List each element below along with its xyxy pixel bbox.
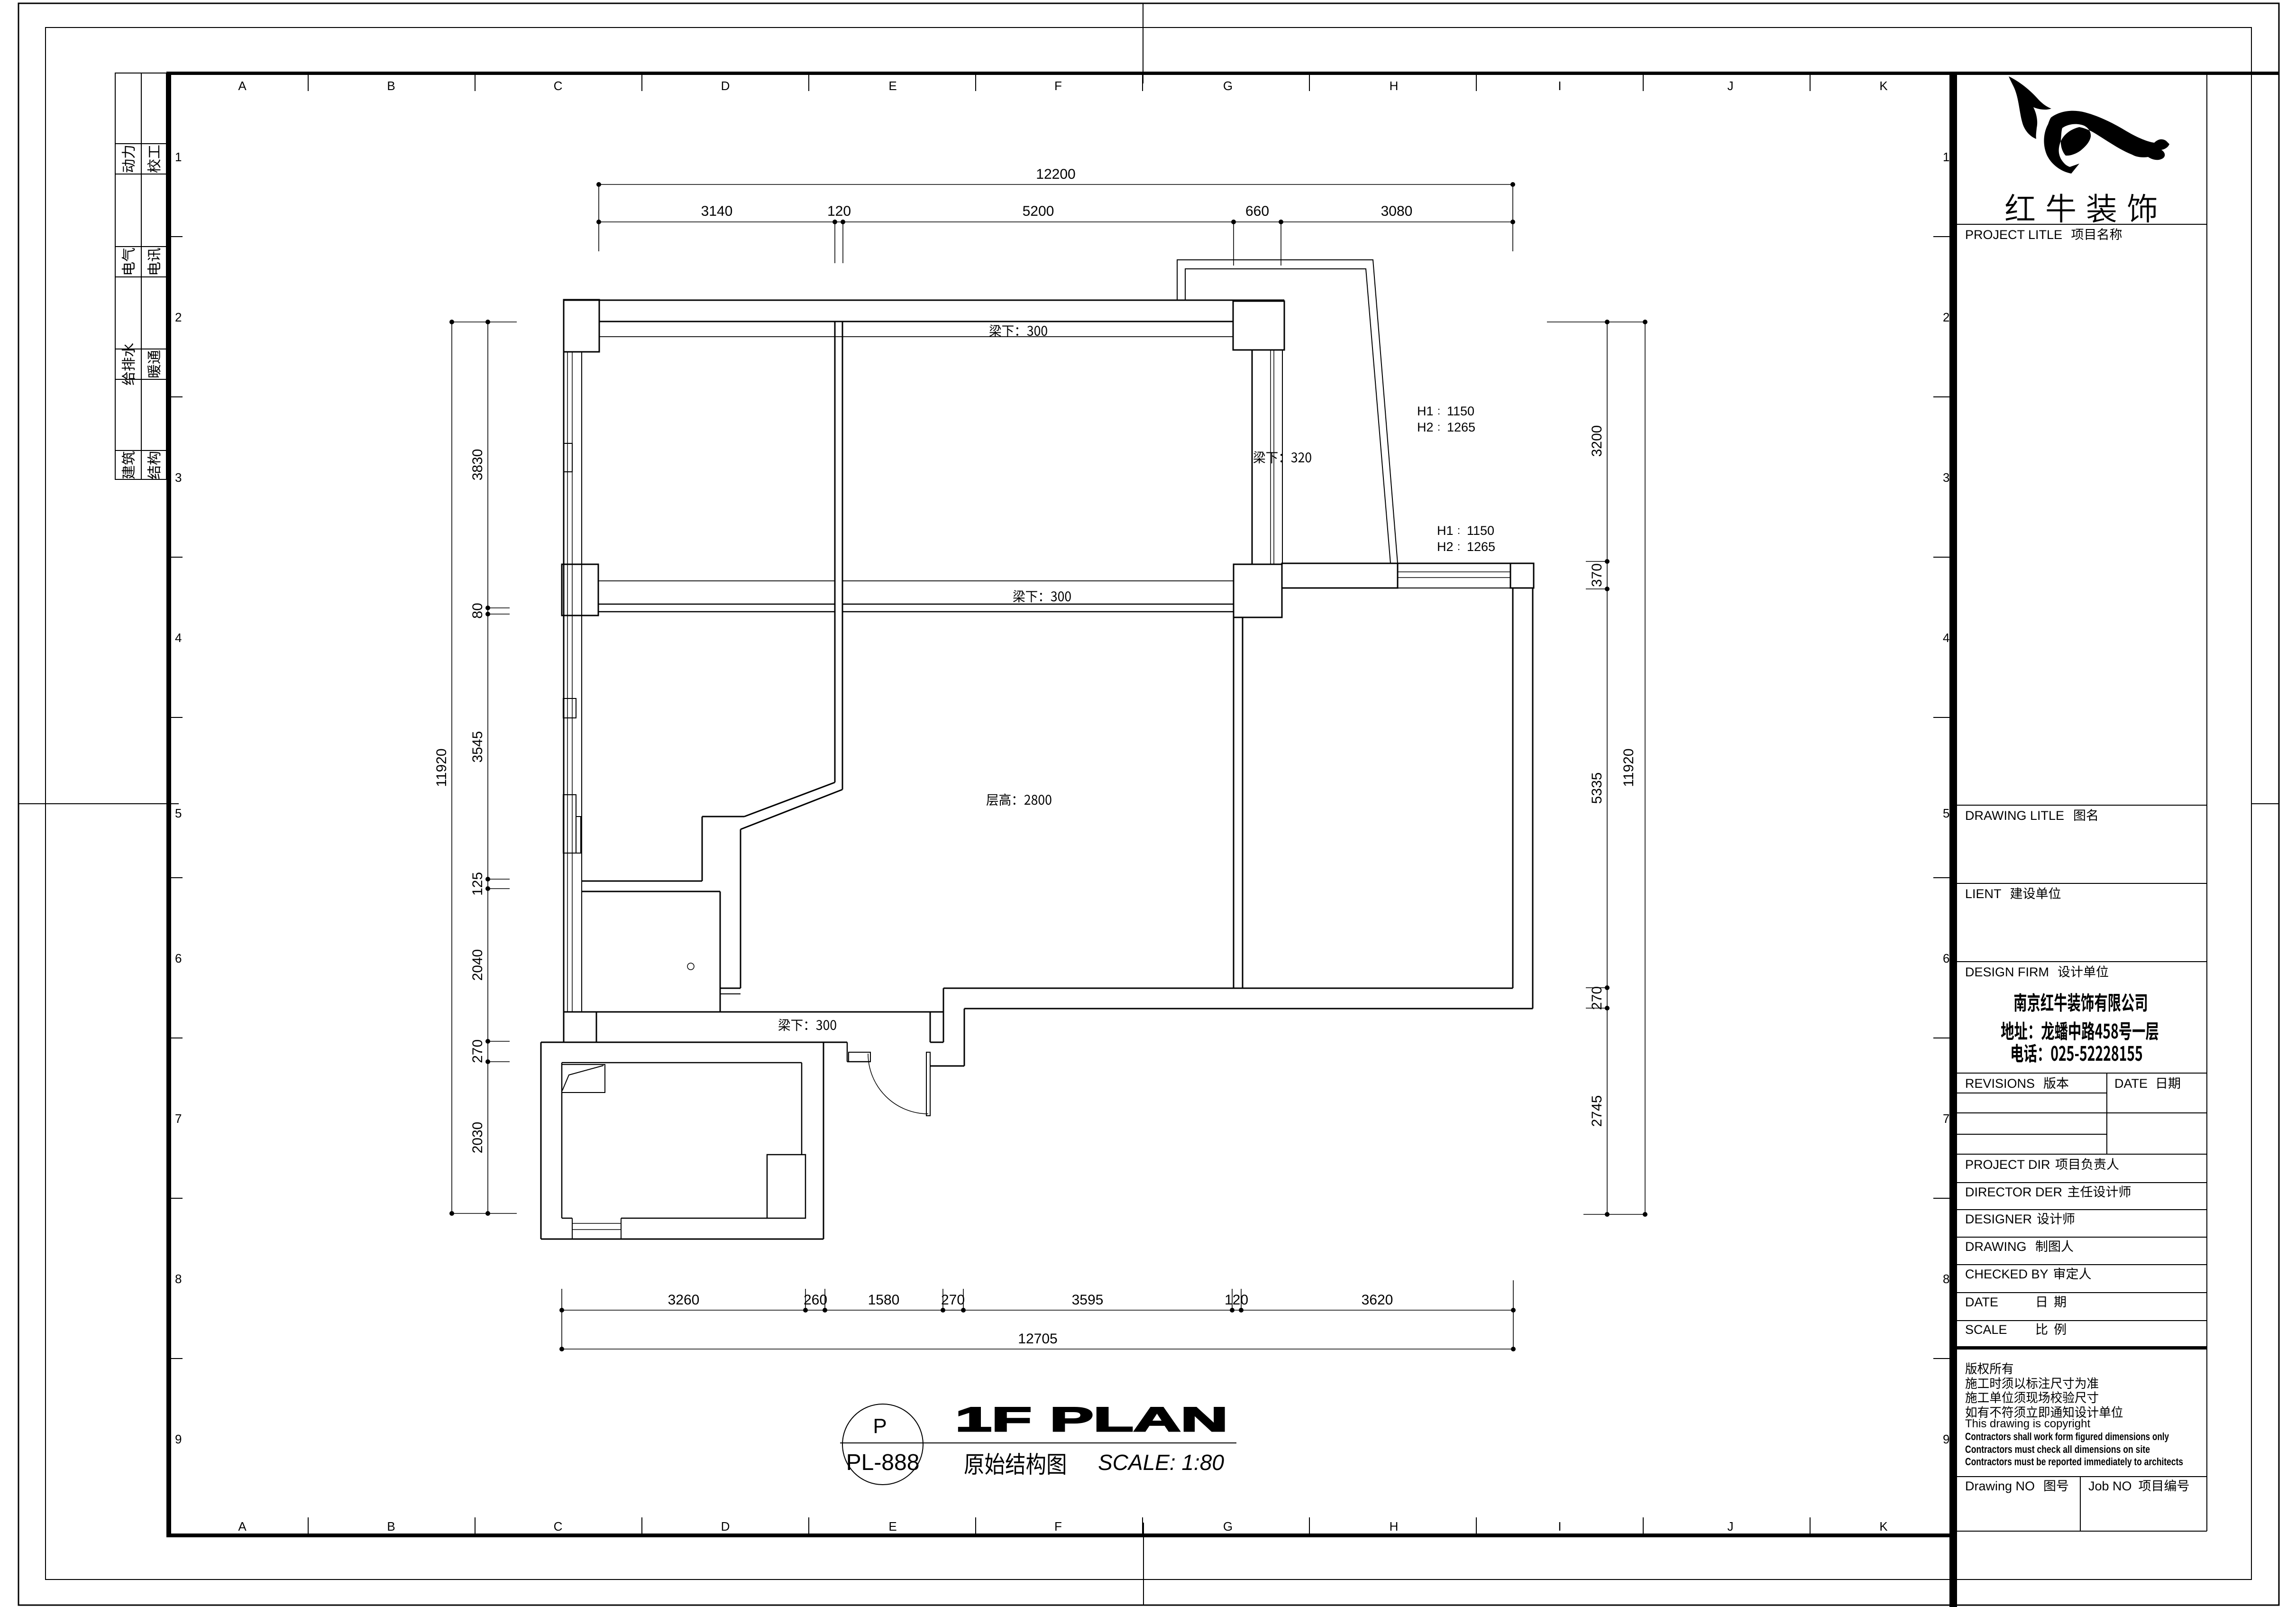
svg-text:3080: 3080	[1381, 203, 1413, 219]
svg-text:K: K	[1879, 79, 1888, 93]
svg-text:K: K	[1879, 1519, 1888, 1534]
svg-text:DESIGN FIRM: DESIGN FIRM	[1965, 965, 2049, 979]
svg-text:G: G	[1223, 79, 1233, 93]
svg-text:This drawing is copyright: This drawing is copyright	[1965, 1417, 2090, 1430]
svg-text:5200: 5200	[1023, 203, 1054, 219]
svg-text:3: 3	[1943, 470, 1949, 485]
svg-text:A: A	[238, 79, 247, 93]
svg-text:11920: 11920	[434, 748, 449, 787]
svg-text:F: F	[1054, 1519, 1062, 1534]
svg-text:DRAWING: DRAWING	[1965, 1240, 2027, 1254]
svg-text:PROJECT LITLE: PROJECT LITLE	[1965, 228, 2062, 242]
svg-text:DATE: DATE	[2114, 1076, 2148, 1091]
svg-text:4: 4	[175, 631, 182, 645]
svg-text:Drawing NO: Drawing NO	[1965, 1479, 2035, 1493]
svg-text:F: F	[1054, 79, 1062, 93]
svg-text:SCALE: 1:80: SCALE: 1:80	[1098, 1450, 1224, 1475]
svg-text:5335: 5335	[1589, 772, 1605, 804]
svg-text:1580: 1580	[868, 1292, 900, 1308]
svg-text:A: A	[238, 1519, 247, 1534]
svg-text:H: H	[1390, 1519, 1399, 1534]
svg-text:660: 660	[1245, 203, 1269, 219]
svg-text:2: 2	[1943, 310, 1949, 324]
svg-text:H1: H1	[1417, 404, 1434, 418]
svg-text:120: 120	[827, 203, 851, 219]
svg-text:D: D	[721, 1519, 730, 1534]
svg-text:DIRECTOR DER: DIRECTOR DER	[1965, 1185, 2062, 1199]
svg-text:DESIGNER: DESIGNER	[1965, 1212, 2032, 1226]
svg-text:1265: 1265	[1447, 420, 1475, 434]
svg-text:80: 80	[470, 603, 485, 618]
svg-text:1265: 1265	[1467, 540, 1495, 554]
svg-text:6: 6	[175, 951, 182, 965]
svg-text:2: 2	[175, 310, 182, 324]
svg-text:270: 270	[470, 1039, 485, 1063]
svg-text:2030: 2030	[470, 1122, 485, 1154]
svg-text:Job NO: Job NO	[2088, 1479, 2132, 1493]
svg-text:H2: H2	[1417, 420, 1434, 434]
svg-text:DATE: DATE	[1965, 1295, 1998, 1309]
svg-text:E: E	[888, 79, 896, 93]
svg-text:SCALE: SCALE	[1965, 1322, 2007, 1337]
svg-text:2745: 2745	[1589, 1095, 1605, 1127]
svg-text:4: 4	[1943, 631, 1949, 645]
svg-text:1: 1	[175, 150, 182, 164]
svg-text:11920: 11920	[1621, 748, 1637, 787]
svg-text:B: B	[387, 1519, 395, 1534]
svg-text:3140: 3140	[701, 203, 733, 219]
svg-text:C: C	[554, 1519, 563, 1534]
svg-text:5: 5	[175, 806, 182, 820]
svg-text::: :	[1457, 541, 1460, 552]
svg-text:260: 260	[804, 1292, 827, 1308]
svg-text:1: 1	[1943, 150, 1949, 164]
svg-text:3830: 3830	[470, 449, 485, 481]
svg-text:12705: 12705	[1018, 1331, 1057, 1347]
svg-text:270: 270	[1589, 986, 1605, 1010]
svg-text:REVISIONS: REVISIONS	[1965, 1076, 2035, 1091]
svg-text:PROJECT DIR: PROJECT DIR	[1965, 1157, 2050, 1172]
svg-text:DRAWING LITLE: DRAWING LITLE	[1965, 808, 2064, 823]
svg-text:1150: 1150	[1447, 404, 1474, 418]
svg-text:2040: 2040	[470, 949, 485, 981]
svg-text:H: H	[1390, 79, 1399, 93]
svg-text:270: 270	[941, 1292, 965, 1308]
svg-text:3200: 3200	[1589, 425, 1605, 457]
svg-text:3: 3	[175, 470, 182, 485]
svg-text:H2: H2	[1437, 540, 1454, 554]
svg-text:G: G	[1223, 1519, 1233, 1534]
svg-text:1F PLAN: 1F PLAN	[955, 1401, 1228, 1439]
svg-text:3620: 3620	[1362, 1292, 1393, 1308]
svg-text:8: 8	[1943, 1272, 1949, 1286]
svg-text:6: 6	[1943, 951, 1949, 965]
svg-text:3260: 3260	[668, 1292, 700, 1308]
svg-text::: :	[1437, 421, 1440, 433]
svg-text:D: D	[721, 79, 730, 93]
svg-text:PL-888: PL-888	[846, 1450, 920, 1475]
svg-text:8: 8	[175, 1272, 182, 1286]
svg-text:7: 7	[1943, 1111, 1949, 1126]
svg-text:7: 7	[175, 1111, 182, 1126]
svg-text:J: J	[1728, 1519, 1734, 1534]
svg-text:B: B	[387, 79, 395, 93]
svg-text:I: I	[1558, 79, 1561, 93]
svg-text:370: 370	[1589, 563, 1605, 587]
svg-text:J: J	[1728, 79, 1734, 93]
svg-text:3595: 3595	[1072, 1292, 1104, 1308]
svg-text:C: C	[554, 79, 563, 93]
svg-text:LIENT: LIENT	[1965, 887, 2002, 901]
svg-text:125: 125	[470, 872, 485, 896]
svg-text:9: 9	[175, 1432, 182, 1446]
svg-text:P: P	[873, 1414, 887, 1438]
svg-text:5: 5	[1943, 806, 1949, 820]
svg-text:Contractors must be reported i: Contractors must be reported immediately…	[1965, 1456, 2183, 1468]
svg-text:CHECKED BY: CHECKED BY	[1965, 1267, 2049, 1281]
svg-text::: :	[1437, 405, 1440, 417]
svg-text:Contractors shall work form fi: Contractors shall work form figured dime…	[1965, 1431, 2169, 1442]
svg-text:12200: 12200	[1036, 166, 1075, 182]
svg-text:3545: 3545	[470, 731, 485, 763]
svg-text::: :	[1457, 524, 1460, 536]
svg-text:1150: 1150	[1467, 523, 1494, 538]
svg-text:9: 9	[1943, 1432, 1949, 1446]
svg-text:E: E	[888, 1519, 896, 1534]
svg-text:120: 120	[1225, 1292, 1248, 1308]
svg-text:Contractors must check all dim: Contractors must check all dimensions on…	[1965, 1443, 2150, 1455]
svg-text:H1: H1	[1437, 523, 1454, 538]
svg-text:I: I	[1558, 1519, 1561, 1534]
